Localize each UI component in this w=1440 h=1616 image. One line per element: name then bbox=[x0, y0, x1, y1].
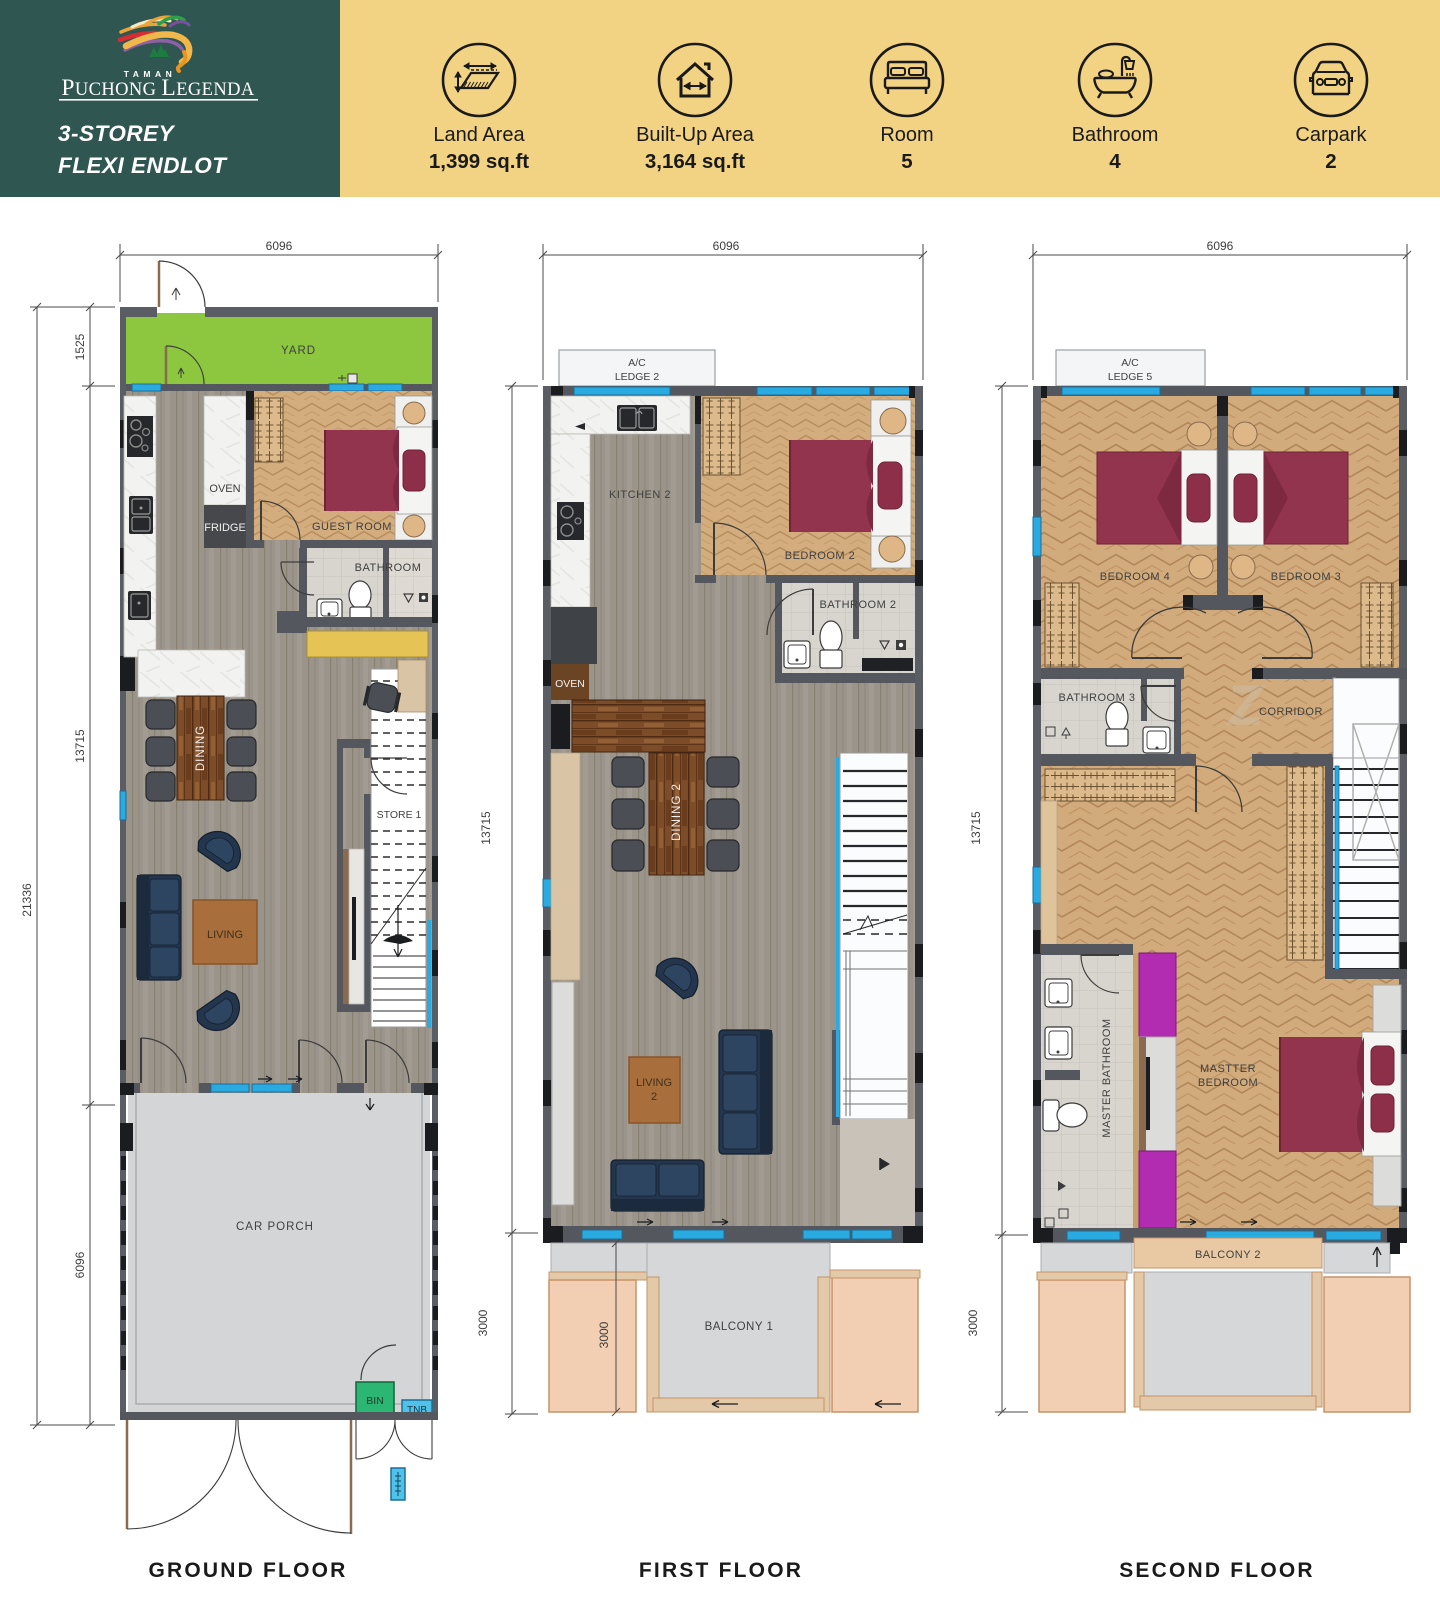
svg-text:2: 2 bbox=[1325, 150, 1336, 173]
svg-text:FRIDGE: FRIDGE bbox=[204, 522, 246, 534]
svg-text:2: 2 bbox=[651, 1091, 657, 1103]
svg-text:MASTER BATHROOM: MASTER BATHROOM bbox=[1101, 1018, 1113, 1137]
svg-text:BEDROOM 2: BEDROOM 2 bbox=[785, 550, 856, 562]
svg-text:BATHROOM 2: BATHROOM 2 bbox=[820, 599, 897, 611]
svg-text:DINING: DINING bbox=[195, 725, 207, 771]
svg-text:GUEST ROOM: GUEST ROOM bbox=[312, 521, 392, 533]
svg-text:6096: 6096 bbox=[1207, 239, 1234, 253]
svg-text:BEDROOM 3: BEDROOM 3 bbox=[1271, 571, 1342, 583]
svg-text:5: 5 bbox=[901, 150, 912, 173]
svg-text:13715: 13715 bbox=[73, 729, 87, 763]
svg-text:Carpark: Carpark bbox=[1295, 124, 1367, 146]
svg-text:BALCONY 1: BALCONY 1 bbox=[705, 1321, 774, 1333]
svg-text:Bathroom: Bathroom bbox=[1072, 124, 1159, 146]
svg-text:CORRIDOR: CORRIDOR bbox=[1259, 706, 1323, 718]
svg-text:13715: 13715 bbox=[969, 811, 983, 845]
svg-text:BEDROOM: BEDROOM bbox=[1198, 1077, 1258, 1089]
svg-text:BATHROOM 3: BATHROOM 3 bbox=[1059, 692, 1136, 704]
svg-text:13715: 13715 bbox=[479, 811, 493, 845]
svg-text:MASTTER: MASTTER bbox=[1200, 1063, 1256, 1075]
svg-text:6096: 6096 bbox=[73, 1251, 87, 1278]
svg-text:LIVING: LIVING bbox=[207, 929, 243, 941]
svg-text:3,164 sq.ft: 3,164 sq.ft bbox=[645, 150, 745, 173]
svg-text:3-STOREY: 3-STOREY bbox=[58, 121, 176, 146]
svg-text:1525: 1525 bbox=[73, 333, 87, 360]
svg-text:LIVING: LIVING bbox=[636, 1077, 672, 1089]
svg-text:GROUND FLOOR: GROUND FLOOR bbox=[148, 1559, 347, 1582]
svg-text:FLEXI ENDLOT: FLEXI ENDLOT bbox=[58, 153, 228, 178]
svg-text:BEDROOM 4: BEDROOM 4 bbox=[1100, 571, 1171, 583]
svg-text:CAR PORCH: CAR PORCH bbox=[236, 1221, 314, 1233]
svg-text:DINING 2: DINING 2 bbox=[671, 783, 683, 841]
svg-text:STORE 1: STORE 1 bbox=[377, 809, 422, 821]
svg-text:1,399 sq.ft: 1,399 sq.ft bbox=[429, 150, 529, 173]
svg-text:Land Area: Land Area bbox=[433, 124, 525, 146]
svg-text:Built-Up Area: Built-Up Area bbox=[636, 124, 755, 146]
svg-text:A/C: A/C bbox=[628, 357, 646, 369]
svg-text:OVEN: OVEN bbox=[555, 678, 585, 690]
svg-text:A/C: A/C bbox=[1121, 357, 1139, 369]
svg-text:KITCHEN 2: KITCHEN 2 bbox=[609, 489, 671, 501]
svg-text:21336: 21336 bbox=[20, 883, 34, 917]
svg-text:LEDGE 2: LEDGE 2 bbox=[615, 371, 660, 383]
svg-text:SECOND FLOOR: SECOND FLOOR bbox=[1119, 1559, 1315, 1582]
svg-text:3000: 3000 bbox=[597, 1321, 611, 1348]
svg-text:BATHROOM: BATHROOM bbox=[355, 562, 422, 574]
svg-text:BIN: BIN bbox=[366, 1395, 384, 1407]
svg-text:LEDGE 5: LEDGE 5 bbox=[1108, 371, 1153, 383]
svg-text:YARD: YARD bbox=[281, 345, 316, 357]
svg-text:Room: Room bbox=[880, 124, 933, 146]
svg-text:6096: 6096 bbox=[713, 239, 740, 253]
svg-text:3000: 3000 bbox=[966, 1309, 980, 1336]
svg-text:3000: 3000 bbox=[476, 1309, 490, 1336]
svg-text:BALCONY 2: BALCONY 2 bbox=[1195, 1249, 1261, 1261]
svg-text:4: 4 bbox=[1109, 150, 1121, 173]
svg-text:FIRST FLOOR: FIRST FLOOR bbox=[639, 1559, 803, 1582]
svg-text:6096: 6096 bbox=[266, 239, 293, 253]
svg-text:OVEN: OVEN bbox=[209, 483, 240, 495]
